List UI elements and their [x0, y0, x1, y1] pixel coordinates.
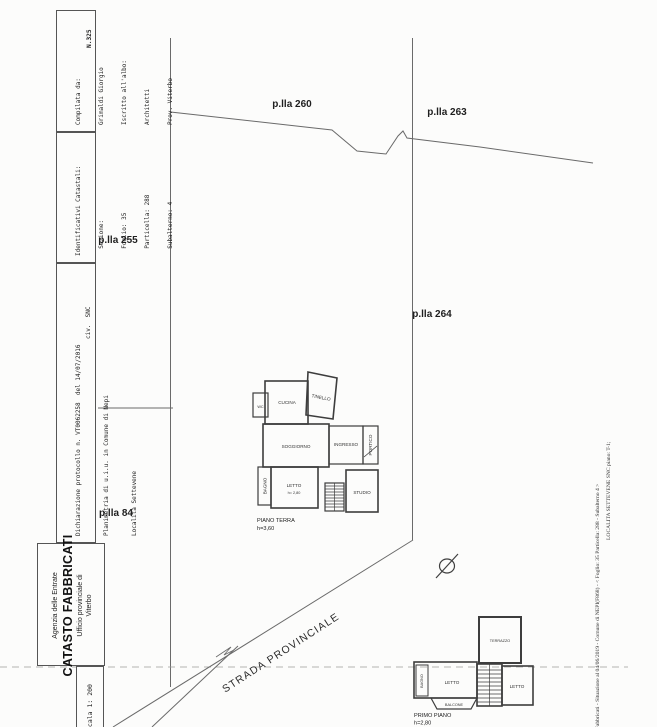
cadastral-id-line: Particella: 288 [144, 141, 152, 256]
cadastral-id-line: Identificativi Catastali: [75, 141, 83, 256]
ff-stairs-steps [477, 664, 502, 706]
parcel-label-260: p.lla 260 [272, 99, 312, 110]
room-label-studio: STUDIO [353, 490, 371, 495]
declaration-line: Planimetria di u.i.u. in Comune di Nepi [103, 272, 111, 536]
agency-block: Agenzia delle Entrate CATASTO FABBRICATI… [37, 543, 105, 666]
compiler-line: Grimaldi Giorgio [98, 19, 106, 125]
footer-note-2: LOCALITA SETTEVENE SNC piano: T-1; [606, 437, 616, 540]
registration-number: N.325 [86, 12, 96, 48]
parcel-boundaries [98, 38, 593, 687]
cadastral-planimetry-page: p.lla 260 p.lla 263 p.lla 255 p.lla 264 … [0, 0, 657, 727]
first-floor-caption: PRIMO PIANO [414, 713, 452, 719]
parcel-label-264: p.lla 264 [412, 309, 452, 320]
cadastral-id-line: Sezione: [98, 141, 106, 256]
room-label-ff-letto-left: LETTO [445, 680, 460, 685]
room-label-cucina: CUCINA [278, 400, 297, 405]
room-label-ff-bagno: BAGNO [420, 674, 424, 688]
cadastral-id-line: Subalterno: 4 [167, 141, 175, 256]
room-label-wc: WC [257, 405, 264, 409]
declaration-line: Dichiarazione protocollo n. VT0062258 de… [75, 272, 83, 536]
office-line: Ufficio provinciale di [77, 574, 84, 636]
road-label: STRADA PROVINCIALE [220, 611, 342, 696]
room-label-balcone: BALCONE [445, 703, 464, 707]
room-label-portico: PORTICO [368, 434, 373, 455]
road [113, 540, 413, 727]
parcel-label-263: p.lla 263 [427, 107, 467, 118]
room-label-terrazzo: TERRAZZO [490, 639, 511, 643]
first-floor-height-note: h=2,80 [414, 721, 431, 727]
office-city: Viterbo [86, 594, 93, 616]
room-label-gf-bagno: BAGNO [263, 477, 268, 494]
cadastral-id-line: Foglio: 35 [121, 141, 129, 256]
gf-stairs [325, 483, 344, 511]
footer-note-1: di Fabbricati - Situazione al 04/06/2019… [595, 408, 606, 727]
compiler-line: Prov. Viterbo [167, 19, 175, 125]
diameter-symbol [436, 554, 458, 578]
first-floor-plan [414, 617, 533, 709]
compiler-line: Architetti [144, 19, 152, 125]
catasto-title: CATASTO FABBRICATI [61, 535, 75, 677]
ground-floor-caption: PIANO TERRA [257, 518, 295, 524]
agency-name: Agenzia delle Entrate [52, 572, 59, 639]
declaration-line: Località Settevene [131, 272, 139, 536]
road-edge-upper [113, 540, 413, 727]
room-label-soggiorno: SOGGIORNO [282, 444, 311, 449]
scale-box: Scala 1: 200 [76, 666, 104, 727]
room-note-letto-height: h= 2,80 [288, 491, 301, 495]
room-label-ingresso: INGRESSO [334, 442, 359, 447]
boundary-upper-jagged [171, 112, 594, 163]
registration-number-block: N.325 [86, 12, 96, 48]
cadastral-ids-block: Identificativi Catastali: Sezione: Fogli… [56, 132, 96, 263]
scale-label: Scala 1: 200 [77, 667, 105, 727]
room-label-ff-letto-right: LETTO [510, 684, 525, 689]
civic-number: civ. SNC [85, 303, 96, 339]
compiler-line: Compilata da: [75, 19, 83, 125]
room-label-gf-letto: LETTO [287, 483, 302, 488]
civic-number-block: civ. SNC [85, 303, 96, 339]
ground-floor-height-note: h=3,60 [257, 526, 274, 532]
compiler-line: Iscritto all'albo: [121, 19, 129, 125]
room-label-tinello: TINELLO [311, 393, 331, 402]
